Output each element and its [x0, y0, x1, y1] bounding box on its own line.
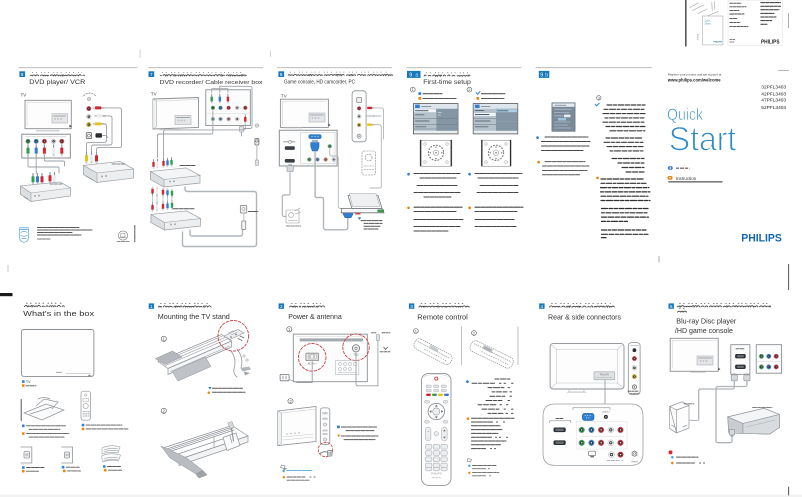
svg-text:Rear & side connectors: Rear & side connectors — [548, 313, 621, 322]
svg-text:DVD player/ VCR: DVD player/ VCR — [29, 79, 86, 86]
svg-text:TV: TV — [26, 380, 31, 384]
svg-text:Game console, HD camcorder, PC: Game console, HD camcorder, PC — [284, 79, 355, 85]
svg-text:/HD game console: /HD game console — [675, 326, 733, 335]
svg-text:PHILIPS: PHILIPS — [713, 42, 722, 44]
svg-text:8: 8 — [280, 72, 283, 77]
svg-text:First-time setup: First-time setup — [423, 79, 471, 86]
svg-text:a: a — [415, 73, 418, 79]
svg-text:Start: Start — [669, 121, 737, 159]
svg-text:Mounting the TV stand: Mounting the TV stand — [158, 312, 230, 321]
svg-text:PHILIPS: PHILIPS — [431, 472, 442, 476]
svg-text:Power & antenna: Power & antenna — [288, 312, 342, 321]
svg-text:TV: TV — [151, 92, 158, 97]
svg-text:Register your product and get: Register your product and get support at — [668, 73, 722, 77]
svg-text:3: 3 — [598, 97, 600, 101]
svg-text:32PFL3403: 32PFL3403 — [761, 85, 786, 91]
svg-text:Start: Start — [705, 22, 712, 26]
svg-text:9: 9 — [540, 73, 543, 79]
svg-text:TV: TV — [21, 93, 28, 98]
svg-text:TV: TV — [281, 94, 288, 99]
svg-text:PHILIPS: PHILIPS — [741, 232, 782, 244]
svg-text:6: 6 — [21, 72, 24, 77]
svg-text:PHILIPS: PHILIPS — [600, 373, 610, 376]
svg-text:b: b — [545, 73, 548, 79]
svg-text:DVD recorder/ Cable receiver b: DVD recorder/ Cable receiver box — [160, 80, 263, 86]
svg-text:47PFL3403: 47PFL3403 — [761, 98, 786, 104]
svg-text:www.philips.com/welcome: www.philips.com/welcome — [667, 78, 722, 83]
svg-text:52PFL3403: 52PFL3403 — [761, 105, 786, 111]
svg-text:42PFL3403: 42PFL3403 — [761, 91, 786, 97]
svg-text:AUDIO: AUDIO — [602, 411, 609, 414]
svg-text:PHILIPS: PHILIPS — [761, 40, 780, 46]
svg-text:+: + — [427, 429, 429, 433]
svg-text:7: 7 — [150, 72, 153, 77]
svg-text:Blu-ray Disc player: Blu-ray Disc player — [676, 317, 737, 326]
svg-text:9: 9 — [409, 73, 412, 79]
svg-text:Remote control: Remote control — [417, 313, 468, 322]
svg-text:What's in the box: What's in the box — [23, 309, 94, 318]
svg-text:Instruction: Instruction — [676, 176, 697, 181]
svg-text:−: − — [427, 437, 429, 441]
